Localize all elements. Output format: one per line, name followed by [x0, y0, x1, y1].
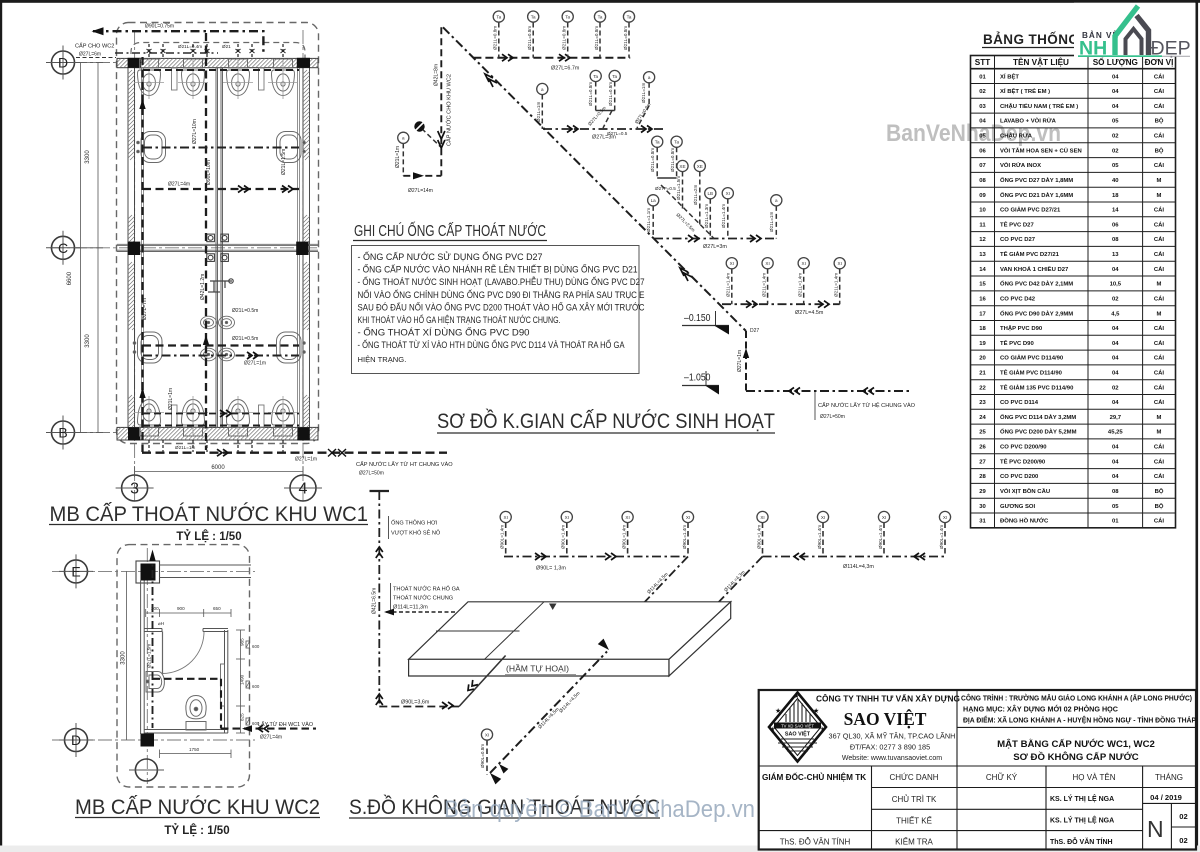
svg-text:Ø21L=0.8m: Ø21L=0.8m	[670, 148, 675, 172]
svg-text:600: 600	[252, 684, 260, 689]
svg-text:Ø27L=6m: Ø27L=6m	[79, 52, 101, 58]
svg-text:D27: D27	[750, 328, 759, 334]
svg-text:VAN KHOÁ 1 CHIỀU D27: VAN KHOÁ 1 CHIỀU D27	[1000, 266, 1069, 273]
svg-text:14: 14	[1112, 208, 1119, 214]
svg-text:Ø21L=0.8m: Ø21L=0.8m	[608, 82, 613, 106]
svg-text:13: 13	[1112, 252, 1119, 258]
svg-text:Ø21L=1.4m: Ø21L=1.4m	[721, 204, 726, 228]
svg-text:Ø27P=0.5: Ø27P=0.5	[655, 186, 676, 191]
svg-text:05: 05	[979, 134, 986, 140]
svg-text:★: ★	[813, 707, 819, 715]
svg-text:1750: 1750	[189, 747, 200, 752]
svg-text:19: 19	[979, 341, 986, 347]
svg-text:04: 04	[1112, 341, 1119, 347]
svg-text:Ø21L=1.1m: Ø21L=1.1m	[646, 208, 651, 232]
svg-text:GHI CHÚ ỐNG CẤP THOÁT NƯỚC: GHI CHÚ ỐNG CẤP THOÁT NƯỚC	[354, 220, 546, 240]
svg-text:Ø21L=2m: Ø21L=2m	[693, 185, 698, 205]
svg-text:Ø21L=1m: Ø21L=1m	[769, 212, 774, 232]
svg-text:NỐI VÀO ỐNG CHÍNH DÙNG ỐNG PVC: NỐI VÀO ỐNG CHÍNH DÙNG ỐNG PVC D90 ĐI TH…	[358, 289, 645, 300]
svg-text:CÁI: CÁI	[1154, 518, 1165, 525]
svg-text:M: M	[1157, 282, 1162, 288]
svg-text:Ø21L=0.8m: Ø21L=0.8m	[650, 148, 655, 172]
svg-text:Ø90L=1.4m: Ø90L=1.4m	[817, 525, 822, 549]
svg-text:15: 15	[979, 282, 986, 288]
svg-text:★: ★	[775, 707, 781, 715]
svg-text:KS. LÝ THỊ LỆ NGA: KS. LÝ THỊ LỆ NGA	[1050, 816, 1114, 825]
svg-text:MB CẤP NƯỚC KHU WC2: MB CẤP NƯỚC KHU WC2	[75, 794, 320, 819]
svg-text:04: 04	[1112, 104, 1119, 110]
svg-text:04: 04	[1112, 356, 1119, 362]
svg-text:08: 08	[979, 178, 986, 184]
svg-text:Ø90L=1.4m: Ø90L=1.4m	[500, 525, 505, 549]
svg-text:a: a	[402, 136, 405, 141]
svg-text:07: 07	[979, 163, 986, 169]
svg-text:04: 04	[1112, 326, 1119, 332]
svg-text:3300: 3300	[121, 651, 127, 665]
svg-text:TÊ PVC D27: TÊ PVC D27	[1000, 220, 1034, 228]
svg-text:29: 29	[979, 489, 986, 495]
svg-text:14: 14	[979, 267, 986, 273]
svg-text:Ø90L=1.4m: Ø90L=1.4m	[621, 525, 626, 549]
svg-text:M: M	[1157, 311, 1162, 317]
svg-text:CÁI: CÁI	[1154, 458, 1165, 465]
svg-text:N: N	[1147, 816, 1164, 842]
svg-text:CO GIẢM PVC D27/21: CO GIẢM PVC D27/21	[1000, 207, 1061, 214]
svg-text:- ỐNG THOÁT NƯỚC SINH HOẠT (LA: - ỐNG THOÁT NƯỚC SINH HOẠT (LAVABO.PHỄU …	[358, 276, 645, 287]
svg-text:Ø21L=1.4m: Ø21L=1.4m	[726, 273, 731, 297]
svg-text:CO GIẢM PVC D114/90: CO GIẢM PVC D114/90	[1000, 355, 1064, 362]
svg-text:- ỐNG THOÁT XÍ DÙNG ỐNG PVC D9: - ỐNG THOÁT XÍ DÙNG ỐNG PVC D90	[358, 327, 530, 338]
svg-text:08: 08	[1112, 489, 1119, 495]
svg-text:Ø21L=0.8m: Ø21L=0.8m	[493, 26, 498, 50]
svg-text:★: ★	[770, 726, 775, 733]
svg-text:200: 200	[151, 606, 159, 611]
svg-text:Ø27L=1m: Ø27L=1m	[295, 457, 317, 463]
svg-text:VÒI XỊT BỒN CẦU: VÒI XỊT BỒN CẦU	[1000, 487, 1050, 495]
svg-text:XI: XI	[760, 515, 764, 520]
svg-text:KHI THOÁT VÀO HỐ GA HIỆN TRẠNG: KHI THOÁT VÀO HỐ GA HIỆN TRẠNG THOÁT NƯỚ…	[358, 314, 561, 325]
svg-text:10: 10	[979, 208, 986, 214]
svg-text:04: 04	[1112, 445, 1119, 451]
svg-text:★: ★	[820, 726, 825, 733]
svg-text:1490: 1490	[240, 674, 245, 685]
svg-text:Ø21L=1.5m: Ø21L=1.5m	[676, 176, 681, 200]
svg-text:CO PVC D42: CO PVC D42	[1000, 297, 1036, 303]
svg-text:01: 01	[979, 74, 986, 80]
svg-text:THOÁT NƯỚC RA HỐ GA: THOÁT NƯỚC RA HỐ GA	[393, 586, 460, 593]
svg-text:04: 04	[1112, 267, 1119, 273]
svg-text:- ỐNG THOÁT TỪ XÍ VÀO HTH DÙNG: - ỐNG THOÁT TỪ XÍ VÀO HTH DÙNG ỐNG PVC D…	[358, 339, 626, 350]
svg-text:XI: XI	[625, 515, 629, 520]
svg-text:17: 17	[979, 311, 986, 317]
svg-text:(HẦM TỰ HOẠI): (HẦM TỰ HOẠI)	[506, 664, 569, 674]
svg-text:Ø21L=0.8m: Ø21L=0.8m	[527, 26, 532, 50]
svg-text:CÁI: CÁI	[1154, 133, 1165, 140]
svg-text:C: C	[58, 240, 68, 256]
svg-text:VÒI RỬA INOX: VÒI RỬA INOX	[1000, 161, 1041, 169]
svg-text:Ta: Ta	[674, 140, 679, 145]
svg-text:TÊ GIẢM 135 PVC D114/90: TÊ GIẢM 135 PVC D114/90	[1000, 383, 1074, 391]
svg-text:E: E	[71, 563, 80, 579]
svg-text:Ø21L=1.5m: Ø21L=1.5m	[281, 149, 287, 175]
svg-text:Ø21L=0.8m: Ø21L=0.8m	[562, 26, 567, 50]
svg-text:05: 05	[1112, 119, 1119, 125]
svg-text:CO PVC D200/90: CO PVC D200/90	[1000, 445, 1047, 451]
svg-text:Ø21L=0.8m: Ø21L=0.8m	[623, 26, 628, 50]
svg-text:XI: XI	[765, 261, 769, 266]
svg-text:Ø27L=4.5m: Ø27L=4.5m	[795, 310, 824, 316]
svg-text:Ø90L=0.8m: Ø90L=0.8m	[480, 744, 485, 768]
svg-text:02: 02	[979, 89, 986, 95]
svg-text:CÁI: CÁI	[1154, 399, 1165, 406]
svg-text:XÍ BỆT ( TRẺ EM ): XÍ BỆT ( TRẺ EM )	[1000, 87, 1050, 95]
svg-text:40: 40	[1112, 178, 1119, 184]
svg-text:650: 650	[213, 606, 221, 611]
svg-text:HỌ VÀ TÊN: HỌ VÀ TÊN	[1073, 773, 1116, 782]
svg-text:KIỂM TRA: KIỂM TRA	[895, 838, 933, 847]
svg-text:02: 02	[1179, 836, 1187, 845]
svg-text:21: 21	[979, 371, 986, 377]
svg-text:CHỨC DANH: CHỨC DANH	[889, 773, 938, 782]
svg-text:TÊ GIẢM PVC D27/21: TÊ GIẢM PVC D27/21	[1000, 250, 1060, 258]
svg-text:Ø21L=1.4m: Ø21L=1.4m	[834, 273, 839, 297]
svg-text:XI: XI	[821, 515, 825, 520]
svg-text:THẬP PVC D90: THẬP PVC D90	[1000, 325, 1043, 332]
svg-text:ỐNG PVC D90 DÀY 2,9MM: ỐNG PVC D90 DÀY 2,9MM	[1000, 310, 1073, 317]
svg-text:TV XD SAO VIỆT: TV XD SAO VIỆT	[781, 723, 814, 728]
svg-text:CO PVC D200: CO PVC D200	[1000, 474, 1039, 480]
svg-text:04 / 2019: 04 / 2019	[1150, 793, 1182, 802]
svg-text:Ø90L=1.4m: Ø90L=1.4m	[939, 525, 944, 549]
svg-text:Ø21L=0.8m: Ø21L=0.8m	[594, 26, 599, 50]
svg-text:CẤP NƯỚC LẤY TỪ HT CHUNG VÀO: CẤP NƯỚC LẤY TỪ HT CHUNG VÀO	[356, 461, 453, 468]
svg-text:VÒI TẮM HOA SEN + CỦ SEN: VÒI TẮM HOA SEN + CỦ SEN	[1000, 146, 1082, 154]
svg-text:18: 18	[979, 326, 986, 332]
svg-text:Ø21L=0.4m: Ø21L=0.4m	[178, 44, 202, 49]
svg-text:29,7: 29,7	[1110, 415, 1122, 421]
svg-text:–0.150: –0.150	[684, 313, 711, 324]
svg-text:- ỐNG CẤP NƯỚC SỬ DỤNG ỐNG PVC: - ỐNG CẤP NƯỚC SỬ DỤNG ỐNG PVC D27	[358, 251, 543, 262]
svg-text:Ø42L=6.5m: Ø42L=6.5m	[372, 588, 378, 614]
svg-text:Ø21L=0.5m: Ø21L=0.5m	[232, 308, 258, 314]
svg-text:ỐNG THÔNG HƠI: ỐNG THÔNG HƠI	[391, 520, 438, 527]
svg-text:XI: XI	[565, 515, 569, 520]
svg-text:ThS. ĐỖ VĂN TÍNH: ThS. ĐỖ VĂN TÍNH	[780, 838, 851, 847]
svg-text:600: 600	[252, 644, 260, 649]
svg-text:CÁI: CÁI	[1154, 162, 1165, 169]
svg-text:Ø114L=4,3m: Ø114L=4,3m	[843, 564, 874, 570]
svg-text:XI: XI	[943, 515, 947, 520]
svg-text:CÁI: CÁI	[1154, 221, 1165, 228]
svg-text:BỘ: BỘ	[1155, 117, 1164, 125]
svg-text:Website: www.tuvansaoviet.com: Website: www.tuvansaoviet.com	[842, 755, 942, 762]
svg-text:26: 26	[979, 445, 986, 451]
svg-text:05: 05	[1112, 163, 1119, 169]
svg-text:13: 13	[979, 252, 986, 258]
svg-text:31: 31	[979, 519, 986, 525]
svg-text:985: 985	[240, 638, 245, 646]
svg-text:Ta: Ta	[598, 14, 603, 19]
svg-text:Ø90L=1.4m: Ø90L=1.4m	[561, 525, 566, 549]
svg-text:Ø90L=1.4m: Ø90L=1.4m	[682, 525, 687, 549]
svg-text:04: 04	[1112, 474, 1119, 480]
svg-text:Ø27L=6.7m: Ø27L=6.7m	[551, 66, 580, 72]
svg-text:4: 4	[299, 481, 308, 498]
svg-text:6000: 6000	[211, 465, 225, 471]
svg-text:6600: 6600	[67, 271, 73, 285]
svg-text:–1.050: –1.050	[684, 373, 711, 384]
svg-text:27: 27	[979, 459, 986, 465]
svg-text:3: 3	[130, 481, 139, 498]
svg-text:Ø27L=4m: Ø27L=4m	[168, 182, 190, 188]
svg-text:THÁNG: THÁNG	[1155, 773, 1183, 782]
svg-text:02: 02	[1179, 812, 1187, 821]
svg-text:ỐNG PVC D42 DÀY 2,1MM: ỐNG PVC D42 DÀY 2,1MM	[1000, 281, 1073, 288]
svg-text:04: 04	[1112, 89, 1119, 95]
svg-text:Ta: Ta	[565, 14, 570, 19]
svg-text:CHẬU TIỂU NAM ( TRẺ EM ): CHẬU TIỂU NAM ( TRẺ EM )	[1000, 103, 1078, 110]
svg-text:CÁI: CÁI	[1154, 355, 1165, 362]
svg-text:D: D	[58, 55, 68, 71]
svg-text:TÊ PVC D90: TÊ PVC D90	[1000, 339, 1034, 347]
svg-text:24: 24	[979, 415, 986, 421]
svg-text:Ø27L=7m: Ø27L=7m	[142, 298, 148, 320]
svg-text:⌀H: ⌀H	[158, 621, 164, 626]
svg-text:GIÁM ĐỐC-CHỦ NHIỆM TK: GIÁM ĐỐC-CHỦ NHIỆM TK	[762, 771, 866, 782]
svg-text:D: D	[71, 732, 81, 748]
svg-text:16: 16	[979, 297, 986, 303]
svg-text:02: 02	[1112, 385, 1119, 391]
svg-text:CÁI: CÁI	[1154, 325, 1165, 332]
svg-text:CÁI: CÁI	[1154, 473, 1165, 480]
svg-text:Ø27L=50m: Ø27L=50m	[359, 471, 384, 477]
svg-text:Ø21L=0.5m: Ø21L=0.5m	[232, 336, 258, 342]
svg-text:Ta: Ta	[655, 140, 660, 145]
svg-text:SƠ ĐỒ K.GIAN CẤP NƯỚC SINH HOẠ: SƠ ĐỒ K.GIAN CẤP NƯỚC SINH HOẠT	[437, 408, 775, 433]
svg-text:CÔNG TY TNHH TƯ VẤN XÂY DỰNG: CÔNG TY TNHH TƯ VẤN XÂY DỰNG	[816, 693, 960, 704]
svg-text:367 QL30, XÃ MỸ TÂN, TP.CAO LÃ: 367 QL30, XÃ MỸ TÂN, TP.CAO LÃNH	[829, 732, 956, 741]
svg-text:SAU ĐÓ ĐẤU NỐI VÀO ỐNG PVC D20: SAU ĐÓ ĐẤU NỐI VÀO ỐNG PVC D200 THOÁT VÀ…	[358, 301, 645, 312]
svg-text:TÊ PVC D200/90: TÊ PVC D200/90	[1000, 457, 1046, 465]
svg-text:Ø21L=1m: Ø21L=1m	[395, 146, 401, 168]
svg-text:CÁI: CÁI	[1154, 103, 1165, 110]
svg-text:09: 09	[979, 193, 986, 199]
svg-text:4,5: 4,5	[1111, 311, 1120, 317]
svg-text:06: 06	[1112, 222, 1119, 228]
svg-text:La: La	[651, 198, 657, 203]
svg-text:ThS. ĐỖ VĂN TÍNH: ThS. ĐỖ VĂN TÍNH	[1050, 837, 1113, 846]
svg-text:25: 25	[979, 430, 986, 436]
svg-text:ĐỒNG HỒ NƯỚC: ĐỒNG HỒ NƯỚC	[1000, 517, 1049, 525]
svg-text:★: ★	[794, 693, 799, 700]
svg-text:Ø21L=1m: Ø21L=1m	[168, 388, 174, 410]
svg-text:CÁI: CÁI	[1154, 266, 1165, 273]
svg-text:Ta: Ta	[612, 74, 617, 79]
svg-text:GƯƠNG SOI: GƯƠNG SOI	[1000, 504, 1035, 510]
svg-text:XI: XI	[802, 261, 806, 266]
svg-text:Ø42L=8m: Ø42L=8m	[434, 64, 440, 86]
svg-text:02: 02	[1112, 134, 1119, 140]
svg-text:LB: LB	[707, 191, 713, 196]
svg-text:Ø27L=0.5: Ø27L=0.5	[607, 131, 628, 136]
svg-text:BỘ: BỘ	[1155, 487, 1164, 495]
svg-text:SƠ ĐỒ KHÔNG CẤP NƯỚC: SƠ ĐỒ KHÔNG CẤP NƯỚC	[1013, 751, 1138, 763]
svg-text:BỘ: BỘ	[1155, 502, 1164, 510]
svg-text:Ø27L=50m: Ø27L=50m	[820, 414, 845, 420]
svg-text:ĐT/FAX: 0277 3 890 185: ĐT/FAX: 0277 3 890 185	[850, 743, 930, 752]
svg-text:XE: XE	[697, 164, 703, 169]
svg-text:03: 03	[979, 104, 986, 110]
svg-text:CÁI: CÁI	[1154, 370, 1165, 377]
svg-text:Ø27L=3m: Ø27L=3m	[703, 244, 727, 250]
svg-text:HIỆN TRẠNG.: HIỆN TRẠNG.	[358, 355, 407, 364]
svg-text:ỐNG PVC D200 DÀY 5,2MM: ỐNG PVC D200 DÀY 5,2MM	[1000, 429, 1077, 436]
svg-text:Ø21L=1.4m: Ø21L=1.4m	[761, 273, 766, 297]
svg-text:B: B	[58, 425, 67, 441]
svg-text:CÁI: CÁI	[1154, 296, 1165, 303]
svg-text:M: M	[1157, 193, 1162, 199]
svg-text:04: 04	[1112, 74, 1119, 80]
svg-text:ĐỊA ĐIỂM: XÃ LONG KHÁNH A - H: ĐỊA ĐIỂM: XÃ LONG KHÁNH A - HUYỆN HỒNG N…	[963, 715, 1196, 725]
svg-text:Ø21: Ø21	[222, 44, 231, 49]
svg-text:28: 28	[979, 474, 986, 480]
svg-text:10,5: 10,5	[1110, 282, 1122, 288]
svg-text:02: 02	[1112, 148, 1119, 154]
svg-text:Ø90L=1.4m: Ø90L=1.4m	[756, 525, 761, 549]
svg-text:Ø90L=0.75m: Ø90L=0.75m	[145, 24, 174, 30]
svg-text:TỶ LỆ : 1/50: TỶ LỆ : 1/50	[176, 530, 241, 543]
svg-text:3300: 3300	[85, 334, 91, 348]
svg-text:CO PVC D27: CO PVC D27	[1000, 237, 1036, 243]
svg-text:45,25: 45,25	[1108, 430, 1123, 436]
svg-text:Ø27L=10m: Ø27L=10m	[192, 119, 198, 144]
svg-text:BỘ: BỘ	[1155, 146, 1164, 154]
svg-text:ỐNG PVC D27 DÀY 1,8MM: ỐNG PVC D27 DÀY 1,8MM	[1000, 177, 1073, 184]
svg-text:Ta: Ta	[531, 14, 536, 19]
svg-text:3300: 3300	[85, 150, 91, 164]
svg-text:20: 20	[979, 356, 986, 362]
svg-text:Ø27L=14m: Ø27L=14m	[408, 188, 433, 194]
svg-text:MB CẤP THOÁT NƯỚC KHU WC1: MB CẤP THOÁT NƯỚC KHU WC1	[50, 501, 369, 526]
svg-text:Ø21L=1m: Ø21L=1m	[175, 445, 195, 450]
svg-text:STT: STT	[975, 58, 990, 67]
svg-text:a: a	[541, 87, 544, 92]
svg-text:600: 600	[252, 721, 260, 726]
svg-text:Ø90L=1.4m: Ø90L=1.4m	[878, 525, 883, 549]
svg-text:ỐNG PVC D114 DÀY 3,2MM: ỐNG PVC D114 DÀY 3,2MM	[1000, 414, 1076, 421]
svg-text:Ø21L=1,5m: Ø21L=1,5m	[147, 644, 152, 668]
svg-text:MẬT BẰNG CẤP NƯỚC WC1, WC2: MẬT BẰNG CẤP NƯỚC WC1, WC2	[997, 738, 1155, 750]
svg-text:- ỐNG CẤP NƯỚC VÀO NHÁNH RẼ LÊ: - ỐNG CẤP NƯỚC VÀO NHÁNH RẼ LÊN THIẾT BỊ…	[358, 264, 638, 275]
svg-text:CHỮ KÝ: CHỮ KÝ	[986, 773, 1018, 782]
svg-text:900: 900	[177, 606, 185, 611]
svg-text:11: 11	[979, 222, 986, 228]
svg-text:Bản quyền © BanVeNhaDep.vn: Bản quyền © BanVeNhaDep.vn	[444, 796, 755, 823]
svg-text:Ta: Ta	[627, 14, 632, 19]
svg-text:LAVABO + VÒI RỬA: LAVABO + VÒI RỬA	[1000, 117, 1057, 125]
svg-text:CÁI: CÁI	[1154, 340, 1165, 347]
svg-text:XI: XI	[730, 261, 734, 266]
svg-text:02: 02	[1112, 297, 1119, 303]
svg-text:Ø90L=10m: Ø90L=10m	[206, 160, 212, 185]
svg-text:XÍ BỆT: XÍ BỆT	[1000, 72, 1019, 80]
svg-text:Ø21L=1m: Ø21L=1m	[641, 83, 646, 103]
svg-text:CHỦ TRÌ TK: CHỦ TRÌ TK	[892, 795, 937, 804]
svg-text:CO PVC D114: CO PVC D114	[1000, 400, 1039, 406]
svg-text:Ta: Ta	[496, 14, 501, 19]
svg-text:XI: XI	[686, 515, 690, 520]
svg-text:05: 05	[1112, 504, 1119, 510]
svg-text:CÁI: CÁI	[1154, 207, 1165, 214]
svg-text:23: 23	[979, 400, 986, 406]
svg-text:TÊ GIẢM PVC D114/90: TÊ GIẢM PVC D114/90	[1000, 369, 1063, 377]
svg-text:06: 06	[979, 148, 986, 154]
svg-text:Ø21L=1.4m: Ø21L=1.4m	[798, 273, 803, 297]
svg-text:SAO VIỆT: SAO VIỆT	[785, 730, 811, 738]
svg-text:CẤP CHO WC2: CẤP CHO WC2	[75, 43, 114, 50]
svg-text:CẤP NƯỚC LẤY TỪ HỆ CHUNG VÀO: CẤP NƯỚC LẤY TỪ HỆ CHUNG VÀO	[818, 401, 916, 409]
svg-text:XI: XI	[726, 191, 730, 196]
svg-text:Ø21L=0.8m: Ø21L=0.8m	[588, 82, 593, 106]
svg-text:04: 04	[1112, 371, 1119, 377]
svg-text:XE: XE	[679, 164, 685, 169]
svg-text:VƯỢT KHỎ SÊ NÔ: VƯỢT KHỎ SÊ NÔ	[391, 529, 441, 537]
svg-text:XI: XI	[882, 515, 886, 520]
svg-text:04: 04	[979, 119, 986, 125]
svg-text:XI: XI	[485, 732, 489, 737]
svg-text:HẠNG MỤC: XÂY DỰNG MỚI 02 PHÒN: HẠNG MỤC: XÂY DỰNG MỚI 02 PHÒNG HỌC	[963, 705, 1118, 714]
svg-text:Ø27L=1m: Ø27L=1m	[737, 350, 743, 372]
svg-text:Ø90L= 1,3m: Ø90L= 1,3m	[536, 566, 566, 572]
svg-text:CÁI: CÁI	[1154, 251, 1165, 258]
svg-text:CÁI: CÁI	[1154, 236, 1165, 243]
svg-text:a: a	[775, 198, 778, 203]
svg-text:CHẬU RỬA: CHẬU RỬA	[1000, 133, 1033, 140]
svg-text:Ø27L=4m: Ø27L=4m	[260, 735, 282, 741]
svg-text:08: 08	[1112, 237, 1119, 243]
svg-text:30: 30	[979, 504, 986, 510]
svg-text:18: 18	[1112, 193, 1119, 199]
svg-text:Ø27L=1m: Ø27L=1m	[244, 361, 266, 367]
svg-text:Ta: Ta	[593, 74, 598, 79]
svg-text:CÁI: CÁI	[1154, 384, 1165, 391]
svg-text:Ø114L=11,3m: Ø114L=11,3m	[393, 605, 428, 611]
svg-text:CẤP NƯỚC CHO KHU WC2: CẤP NƯỚC CHO KHU WC2	[446, 74, 453, 146]
svg-text:CÁI: CÁI	[1154, 444, 1165, 451]
svg-text:Ø21L=1m: Ø21L=1m	[536, 102, 541, 122]
svg-text:825: 825	[240, 713, 245, 721]
svg-text:M: M	[1157, 415, 1162, 421]
svg-text:XI: XI	[504, 515, 508, 520]
svg-text:CÔNG TRÌNH : TRƯỜNG MẪU GIÁO L: CÔNG TRÌNH : TRƯỜNG MẪU GIÁO LONG KHÁNH …	[961, 693, 1193, 703]
svg-text:THIẾT KẾ: THIẾT KẾ	[896, 816, 932, 826]
svg-text:CÁI: CÁI	[1154, 88, 1165, 95]
svg-text:22: 22	[979, 385, 986, 391]
svg-text:M: M	[1157, 430, 1162, 436]
svg-text:01: 01	[1112, 519, 1119, 525]
svg-text:04: 04	[1112, 400, 1119, 406]
svg-text:12: 12	[979, 237, 986, 243]
svg-text:ỐNG PVC D21 DÀY 1,6MM: ỐNG PVC D21 DÀY 1,6MM	[1000, 192, 1073, 199]
svg-text:M: M	[1157, 178, 1162, 184]
svg-text:CÁI: CÁI	[1154, 73, 1165, 80]
svg-text:04: 04	[1112, 459, 1119, 465]
svg-text:SAO VIỆT: SAO VIỆT	[844, 709, 927, 729]
svg-text:XI: XI	[838, 261, 842, 266]
svg-text:LẤY TỪ ĐH WC1 VÀO: LẤY TỪ ĐH WC1 VÀO	[258, 721, 313, 728]
svg-text:a: a	[648, 75, 651, 80]
svg-text:THOÁT NƯỚC CHUNG: THOÁT NƯỚC CHUNG	[393, 595, 453, 602]
